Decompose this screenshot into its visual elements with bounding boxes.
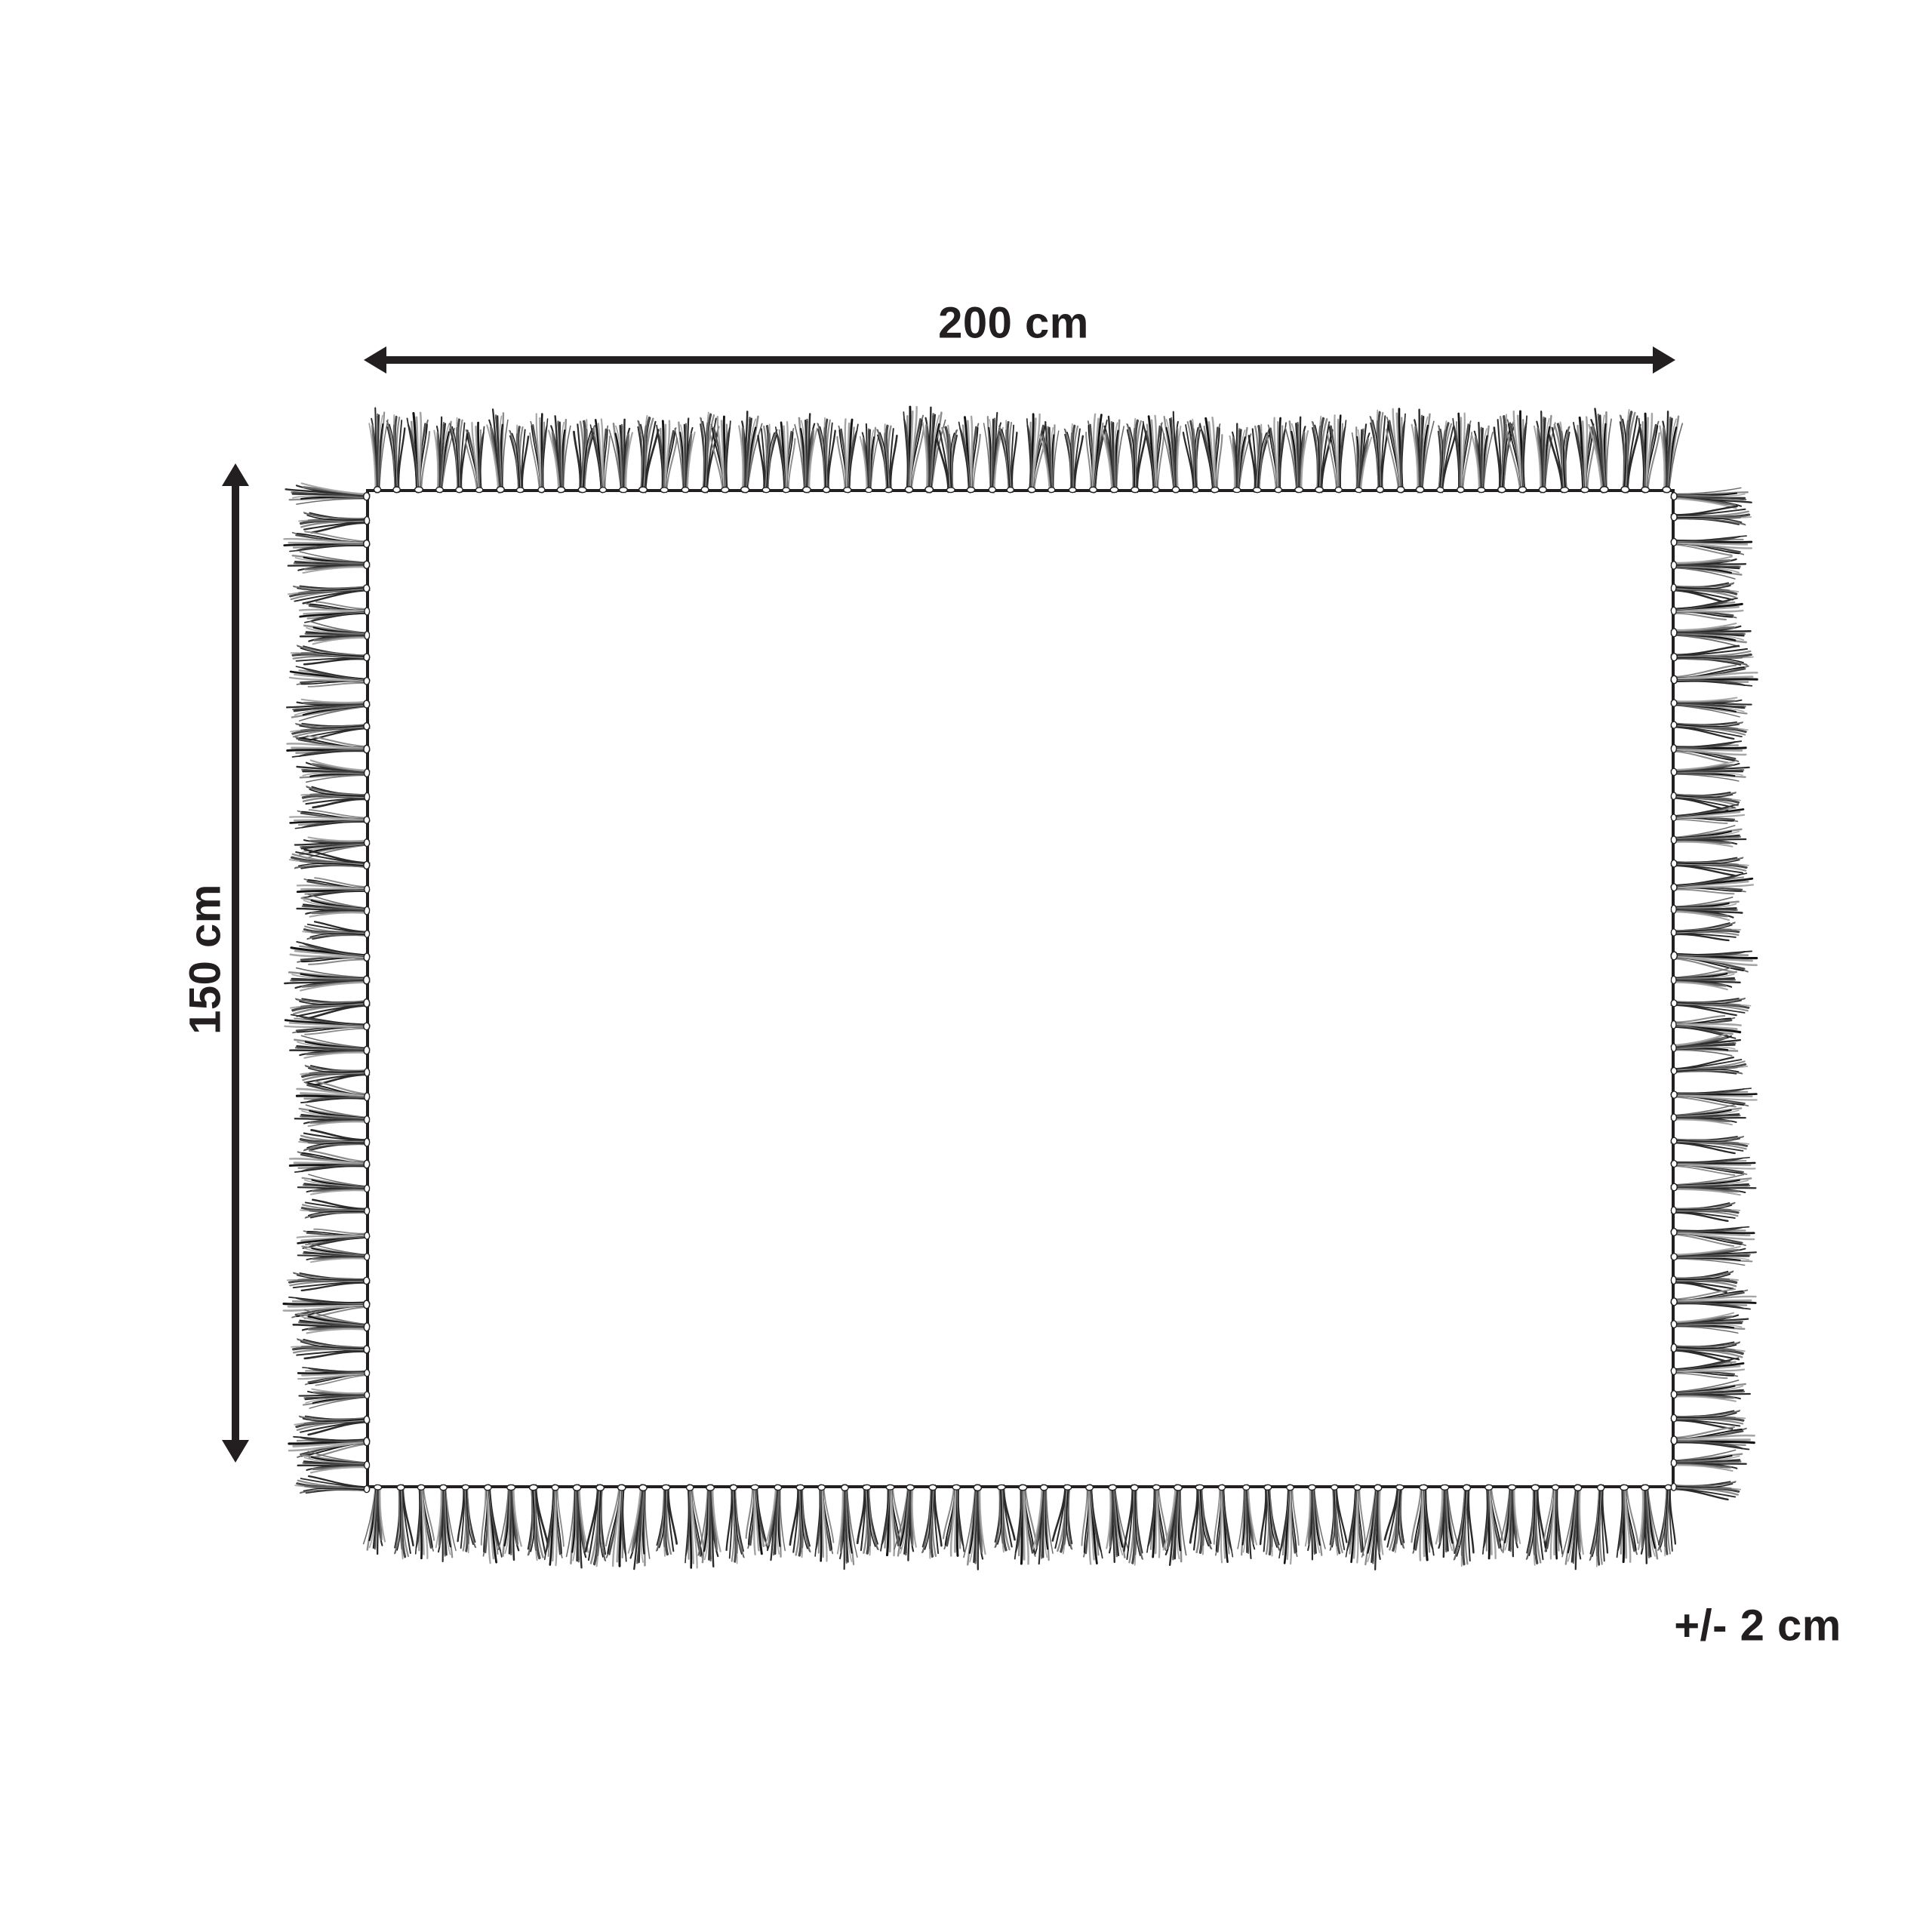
fringe-tassel bbox=[1671, 873, 1754, 898]
fringe-tassel bbox=[1671, 789, 1741, 811]
fringe-tassel bbox=[1433, 420, 1457, 493]
fringe-tassel bbox=[300, 1200, 370, 1219]
fringe-tassel bbox=[435, 1484, 457, 1561]
fringe-tassel bbox=[1411, 1484, 1434, 1560]
fringe-tassel bbox=[1671, 1380, 1750, 1404]
fringe-tassel bbox=[817, 417, 837, 493]
fringe-tassel bbox=[1039, 421, 1062, 493]
fringe-tassel bbox=[1561, 1484, 1587, 1569]
fringe-tassel bbox=[1506, 411, 1533, 494]
fringe-tassel bbox=[919, 407, 946, 493]
fringe-tassel bbox=[993, 1484, 1015, 1552]
fringe-tassel bbox=[1361, 1484, 1388, 1570]
fringe-tassel bbox=[1212, 1484, 1232, 1563]
fringe-tassel bbox=[1657, 411, 1683, 494]
fringe-tassel bbox=[635, 415, 659, 493]
fringe-tassel bbox=[369, 408, 388, 493]
height-dimension-label: 150 cm bbox=[180, 884, 231, 1035]
fringe-tassel bbox=[1102, 416, 1127, 493]
fringe-tassel bbox=[1123, 1484, 1143, 1565]
fringe-tassel bbox=[1411, 409, 1435, 493]
fringe-tassel bbox=[697, 412, 719, 493]
fringe-tassel bbox=[285, 968, 370, 991]
fringe-tassel bbox=[529, 414, 550, 493]
fringe-tassel bbox=[1385, 408, 1410, 494]
fringe-tassel bbox=[1384, 1484, 1407, 1553]
fringe-tassel bbox=[1452, 413, 1472, 492]
fringe-tassel bbox=[860, 424, 879, 493]
fringe-tassel bbox=[283, 1294, 370, 1319]
fringe-tassel bbox=[1534, 411, 1555, 493]
fringe-tassel bbox=[1671, 1202, 1740, 1221]
fringe-tassel bbox=[287, 735, 370, 759]
fringe-tassel bbox=[654, 420, 677, 493]
fringe-tassel bbox=[836, 1484, 857, 1569]
fringe-tassel bbox=[1257, 1484, 1281, 1557]
fringe-tassel bbox=[1671, 922, 1741, 943]
fringe-tassel bbox=[1671, 555, 1746, 580]
fringe-tassel bbox=[296, 1080, 370, 1107]
rug-dimension-drawing bbox=[0, 0, 1932, 1932]
fringe-tassel bbox=[609, 420, 634, 493]
fringe-tassel bbox=[764, 1484, 789, 1561]
arrowhead-right-icon bbox=[1653, 346, 1675, 374]
fringe-tassel bbox=[291, 1339, 370, 1361]
fringe-tassel bbox=[301, 786, 370, 810]
fringe-tassel bbox=[1348, 423, 1373, 493]
fringe-tassel bbox=[723, 1484, 744, 1564]
fringe-tassel bbox=[294, 1412, 371, 1435]
fringe-tassel bbox=[982, 412, 1004, 493]
fringe-tassel bbox=[1671, 622, 1751, 647]
diagram-canvas: 200 cm 150 cm +/- 2 cm bbox=[0, 0, 1932, 1932]
fringe-tassel bbox=[1143, 415, 1166, 493]
fringe-tassel bbox=[1303, 1484, 1326, 1560]
width-dimension-label: 200 cm bbox=[938, 298, 1089, 349]
fringe-tassel bbox=[299, 1386, 370, 1409]
fringe-tassel bbox=[681, 1484, 704, 1569]
fringe-tassel bbox=[300, 621, 370, 645]
fringe-tassel bbox=[1671, 598, 1743, 622]
tolerance-label: +/- 2 cm bbox=[1674, 1601, 1841, 1651]
fringe-tassel bbox=[1671, 1155, 1755, 1176]
fringe-tassel bbox=[289, 849, 370, 873]
fringe-tassel bbox=[1635, 1484, 1662, 1564]
fringe-tassel bbox=[1671, 718, 1749, 740]
fringe-tassel bbox=[1267, 417, 1287, 492]
fringe-tassel bbox=[393, 1484, 414, 1558]
fringe-tassel bbox=[478, 1484, 503, 1564]
fringe-tassel bbox=[1614, 1484, 1639, 1563]
fringe-tassel bbox=[565, 1484, 588, 1568]
fringe-top bbox=[369, 406, 1683, 494]
fringe-tassel bbox=[1617, 410, 1640, 494]
fringe-tassel bbox=[509, 425, 532, 493]
fringe-tassel bbox=[294, 833, 370, 859]
fringe-tassel bbox=[1183, 419, 1202, 493]
fringe-tassel bbox=[1671, 1174, 1755, 1196]
fringe-tassel bbox=[743, 1484, 768, 1555]
fringe-tassel bbox=[1064, 424, 1083, 493]
fringe-tassel bbox=[1671, 825, 1746, 849]
fringe-tassel bbox=[795, 414, 817, 492]
fringe-tassel bbox=[291, 645, 370, 669]
fringe-tassel bbox=[788, 1484, 811, 1558]
fringe-tassel bbox=[1549, 422, 1573, 494]
fringe-tassel bbox=[1245, 423, 1270, 493]
arrowhead-left-icon bbox=[364, 346, 386, 374]
fringe-tassel bbox=[1082, 414, 1107, 493]
fringe-tassel bbox=[1327, 415, 1347, 493]
fringe-tassel bbox=[964, 1484, 988, 1570]
fringe-tassel bbox=[1671, 506, 1751, 525]
fringe-tassel bbox=[1079, 1484, 1103, 1564]
fringe-tassel bbox=[921, 1484, 944, 1558]
fringe-bottom bbox=[363, 1484, 1678, 1570]
fringe-tassel bbox=[1671, 1450, 1746, 1472]
fringe-tassel bbox=[1671, 1134, 1749, 1154]
fringe-tassel bbox=[1327, 1484, 1347, 1555]
fringe-tassel bbox=[1472, 423, 1493, 493]
fringe-tassel bbox=[1187, 1484, 1212, 1555]
fringe-tassel bbox=[290, 1035, 370, 1060]
fringe-tassel bbox=[674, 418, 694, 492]
fringe-tassel bbox=[294, 1104, 370, 1129]
fringe-tassel bbox=[1588, 408, 1617, 494]
rug-body bbox=[368, 491, 1673, 1487]
fringe-tassel bbox=[1671, 897, 1742, 921]
fringe-tassel bbox=[1671, 694, 1752, 717]
fringe-tassel bbox=[464, 422, 488, 493]
fringe-tassel bbox=[1435, 1484, 1459, 1557]
fringe-tassel bbox=[285, 482, 371, 508]
fringe-tassel bbox=[297, 1174, 370, 1197]
fringe-tassel bbox=[300, 601, 370, 623]
fringe-tassel bbox=[1279, 1484, 1300, 1564]
fringe-tassel bbox=[548, 415, 573, 493]
fringe-tassel bbox=[300, 1064, 370, 1085]
fringe-tassel bbox=[1671, 1312, 1749, 1336]
fringe-tassel bbox=[1671, 1358, 1745, 1382]
fringe-tassel bbox=[1160, 411, 1184, 493]
fringe-tassel bbox=[363, 1484, 387, 1555]
fringe-tassel bbox=[1671, 485, 1752, 509]
fringe-tassel bbox=[296, 760, 370, 786]
fringe-tassel bbox=[1671, 1057, 1748, 1078]
fringe-tassel bbox=[1671, 1288, 1756, 1311]
fringe-tassel bbox=[1127, 419, 1146, 493]
fringe-tassel bbox=[1103, 1484, 1129, 1562]
fringe-tassel bbox=[386, 414, 408, 493]
fringe-right bbox=[1670, 485, 1758, 1500]
fringe-tassel bbox=[776, 422, 796, 493]
fringe-tassel bbox=[1635, 413, 1660, 493]
fringe-tassel bbox=[290, 810, 370, 829]
fringe-tassel bbox=[1543, 1484, 1564, 1559]
fringe-tassel bbox=[1454, 1484, 1478, 1567]
fringe-tassel bbox=[1032, 1484, 1055, 1564]
fringe-tassel bbox=[1671, 738, 1746, 763]
fringe-tassel bbox=[285, 1014, 370, 1036]
fringe-tassel bbox=[288, 1272, 370, 1291]
fringe-tassel bbox=[290, 941, 371, 968]
fringe-tassel bbox=[1589, 1484, 1611, 1567]
fringe-tassel bbox=[1235, 1484, 1257, 1558]
fringe-tassel bbox=[1671, 1104, 1746, 1126]
fringe-tassel bbox=[288, 1431, 371, 1460]
fringe-left bbox=[283, 482, 371, 1496]
fringe-tassel bbox=[1013, 1484, 1037, 1564]
fringe-tassel bbox=[958, 417, 982, 493]
fringe-tassel bbox=[290, 1150, 371, 1174]
fringe-tassel bbox=[1671, 533, 1752, 556]
fringe-tassel bbox=[1162, 1484, 1191, 1566]
fringe-tassel bbox=[450, 417, 470, 493]
fringe-tassel bbox=[1671, 645, 1753, 665]
fringe-tassel bbox=[284, 531, 370, 553]
arrowhead-down-icon bbox=[222, 1440, 249, 1463]
fringe-tassel bbox=[1499, 1484, 1521, 1556]
fringe-tassel bbox=[407, 413, 430, 493]
fringe-tassel bbox=[303, 921, 370, 941]
fringe-tassel bbox=[288, 581, 370, 605]
fringe-tassel bbox=[1671, 1223, 1755, 1247]
arrowhead-up-icon bbox=[222, 463, 249, 486]
fringe-tassel bbox=[297, 878, 370, 899]
fringe-tassel bbox=[937, 425, 959, 493]
fringe-tassel bbox=[657, 1484, 678, 1556]
fringe-tassel bbox=[1671, 1480, 1740, 1500]
fringe-tassel bbox=[627, 1484, 655, 1570]
fringe-tassel bbox=[1671, 996, 1751, 1015]
fringe-tassel bbox=[1052, 1484, 1075, 1555]
fringe-tassel bbox=[943, 1484, 966, 1556]
fringe-tassel bbox=[1671, 1013, 1742, 1038]
fringe-tassel bbox=[1671, 664, 1758, 690]
fringe-tassel bbox=[1285, 417, 1309, 493]
fringe-tassel bbox=[287, 694, 371, 721]
fringe-tassel bbox=[1479, 1484, 1503, 1559]
fringe-tassel bbox=[295, 1475, 370, 1496]
fringe-tassel bbox=[899, 406, 924, 493]
fringe-tassel bbox=[299, 512, 370, 533]
fringe-tassel bbox=[734, 411, 762, 494]
fringe-tassel bbox=[486, 408, 512, 493]
fringe-tassel bbox=[498, 1484, 521, 1560]
fringe-tassel bbox=[1671, 1086, 1757, 1108]
fringe-tassel bbox=[1670, 945, 1758, 974]
fringe-tassel bbox=[813, 1484, 835, 1561]
fringe-tassel bbox=[1671, 857, 1749, 876]
fringe-tassel bbox=[836, 419, 858, 492]
fringe-tassel bbox=[289, 666, 370, 691]
fringe-tassel bbox=[1199, 417, 1226, 493]
fringe-tassel bbox=[455, 1484, 476, 1553]
fringe-tassel bbox=[288, 552, 370, 574]
fringe-tassel bbox=[877, 423, 901, 493]
fringe-tassel bbox=[894, 1484, 920, 1561]
fringe-tassel bbox=[1671, 1246, 1756, 1267]
fringe-tassel bbox=[1526, 1484, 1547, 1565]
fringe-tassel bbox=[297, 1226, 370, 1248]
fringe-tassel bbox=[1671, 761, 1749, 783]
fringe-tassel bbox=[998, 420, 1021, 493]
fringe-tassel bbox=[605, 1484, 632, 1567]
fringe-tassel bbox=[1022, 414, 1048, 494]
fringe-tassel bbox=[412, 1484, 435, 1559]
fringe-tassel bbox=[299, 1130, 370, 1151]
fringe-tassel bbox=[297, 1364, 370, 1386]
fringe-tassel bbox=[545, 1484, 565, 1565]
fringe-tassel bbox=[586, 1484, 608, 1567]
fringe-tassel bbox=[1671, 1427, 1755, 1451]
fringe-tassel bbox=[297, 1242, 370, 1265]
width-dimension-arrow bbox=[364, 346, 1675, 374]
fringe-tassel bbox=[1657, 1484, 1678, 1556]
fringe-tassel bbox=[1670, 1033, 1741, 1060]
fringe-tassel bbox=[525, 1484, 549, 1561]
fringe-tassel bbox=[290, 995, 370, 1020]
fringe-tassel bbox=[854, 1484, 878, 1556]
fringe-tassel bbox=[1227, 423, 1251, 493]
